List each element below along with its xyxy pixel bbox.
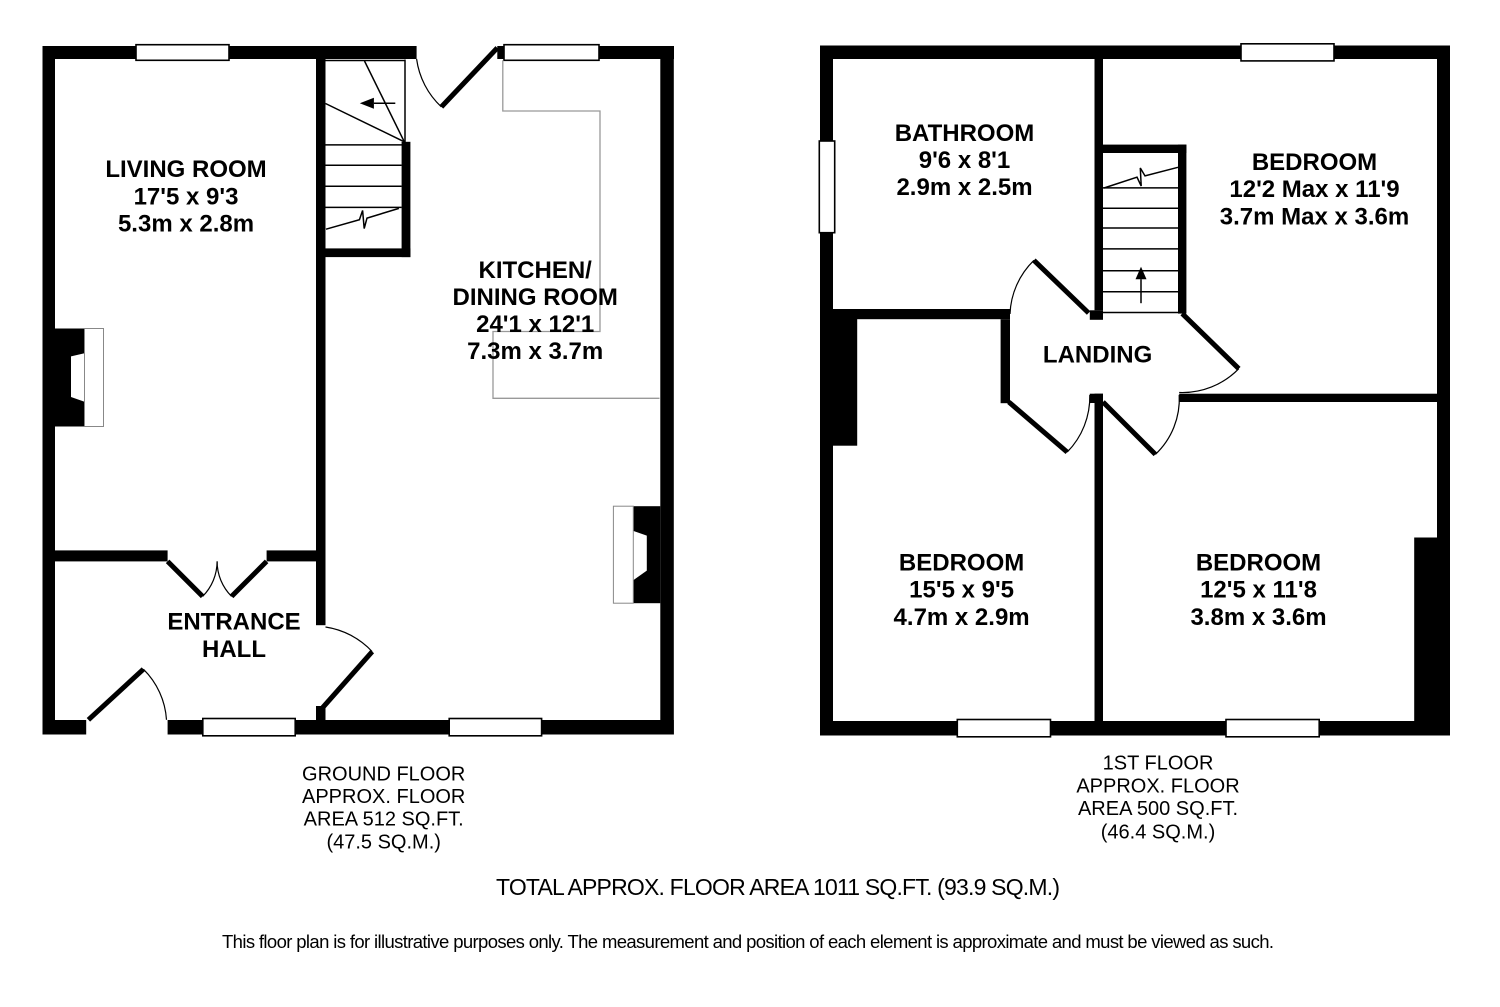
svg-text:12'5 x 11'8: 12'5 x 11'8 <box>1200 577 1317 604</box>
svg-text:APPROX. FLOOR: APPROX. FLOOR <box>302 786 465 808</box>
svg-text:HALL: HALL <box>202 636 266 663</box>
svg-text:3.7m Max x 3.6m: 3.7m Max x 3.6m <box>1220 203 1409 230</box>
svg-text:4.7m x 2.9m: 4.7m x 2.9m <box>894 604 1030 631</box>
svg-text:(46.4 SQ.M.): (46.4 SQ.M.) <box>1101 821 1215 843</box>
svg-text:TOTAL APPROX. FLOOR AREA 1011: TOTAL APPROX. FLOOR AREA 1011 SQ.FT. (93… <box>496 874 1060 900</box>
svg-text:15'5 x 9'5: 15'5 x 9'5 <box>909 577 1014 604</box>
svg-text:1ST FLOOR: 1ST FLOOR <box>1103 753 1214 775</box>
svg-text:BATHROOM: BATHROOM <box>895 120 1035 147</box>
svg-text:3.8m x 3.6m: 3.8m x 3.6m <box>1190 604 1326 631</box>
svg-text:BEDROOM: BEDROOM <box>899 550 1024 577</box>
svg-text:9'6 x 8'1: 9'6 x 8'1 <box>919 147 1011 174</box>
svg-text:ENTRANCE: ENTRANCE <box>167 609 300 636</box>
svg-text:LANDING: LANDING <box>1043 342 1152 369</box>
svg-text:BEDROOM: BEDROOM <box>1252 149 1377 176</box>
svg-text:24'1 x 12'1: 24'1 x 12'1 <box>476 311 594 338</box>
svg-text:This floor plan is for illustr: This floor plan is for illustrative purp… <box>222 931 1274 952</box>
svg-text:BEDROOM: BEDROOM <box>1196 550 1321 577</box>
svg-text:KITCHEN/: KITCHEN/ <box>479 257 593 284</box>
svg-text:DINING ROOM: DINING ROOM <box>453 284 618 311</box>
svg-text:AREA 512 SQ.FT.: AREA 512 SQ.FT. <box>304 809 464 831</box>
svg-text:7.3m x 3.7m: 7.3m x 3.7m <box>467 338 603 365</box>
svg-text:AREA 500 SQ.FT.: AREA 500 SQ.FT. <box>1078 798 1238 820</box>
svg-text:APPROX. FLOOR: APPROX. FLOOR <box>1076 775 1239 797</box>
svg-text:17'5 x 9'3: 17'5 x 9'3 <box>134 183 239 210</box>
svg-text:2.9m x 2.5m: 2.9m x 2.5m <box>896 174 1032 201</box>
svg-text:(47.5 SQ.M.): (47.5 SQ.M.) <box>326 831 440 853</box>
svg-text:5.3m x 2.8m: 5.3m x 2.8m <box>118 210 254 237</box>
svg-text:LIVING ROOM: LIVING ROOM <box>105 156 266 183</box>
svg-text:GROUND FLOOR: GROUND FLOOR <box>302 763 465 785</box>
svg-text:12'2 Max x 11'9: 12'2 Max x 11'9 <box>1229 176 1399 203</box>
